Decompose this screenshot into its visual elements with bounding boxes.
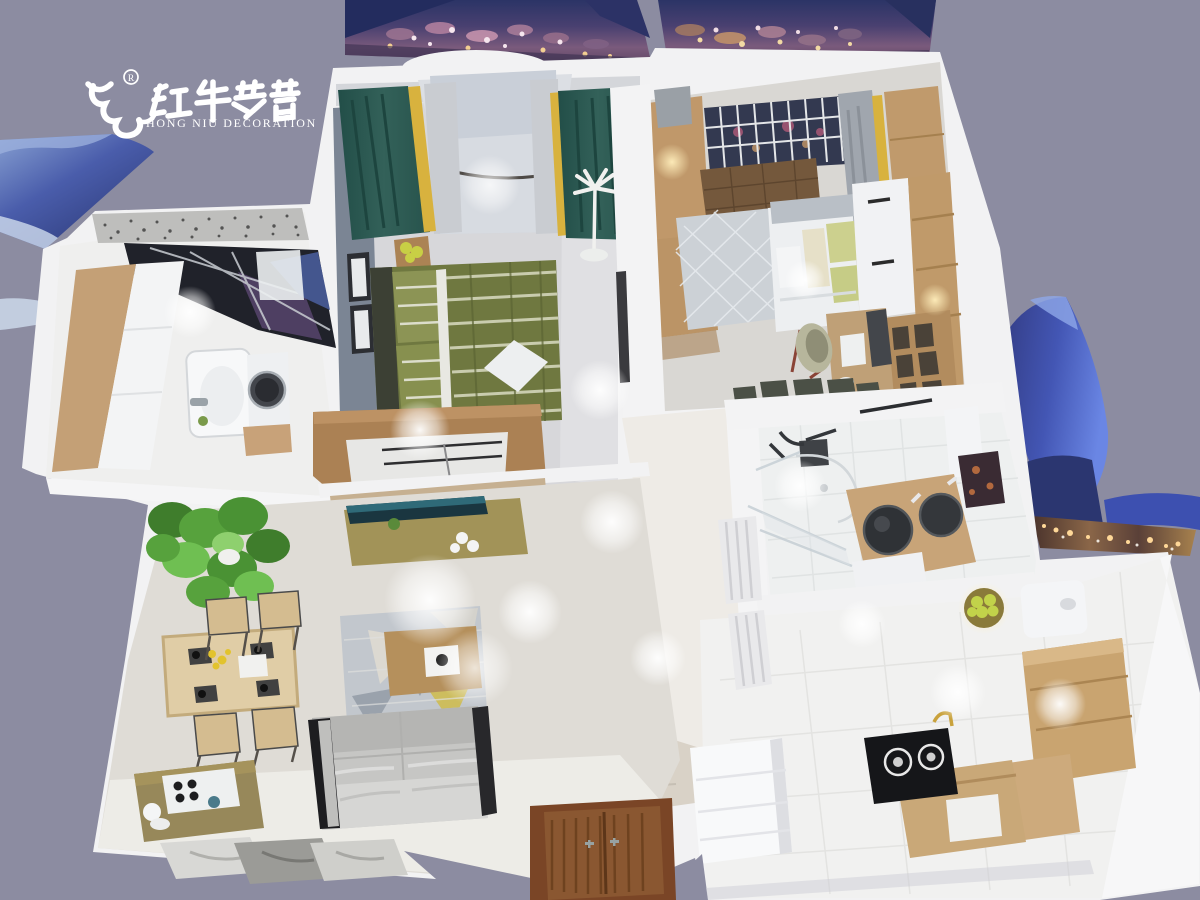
svg-text:HONG NIU DECORATION: HONG NIU DECORATION [146,116,317,130]
svg-text:R: R [128,74,135,84]
